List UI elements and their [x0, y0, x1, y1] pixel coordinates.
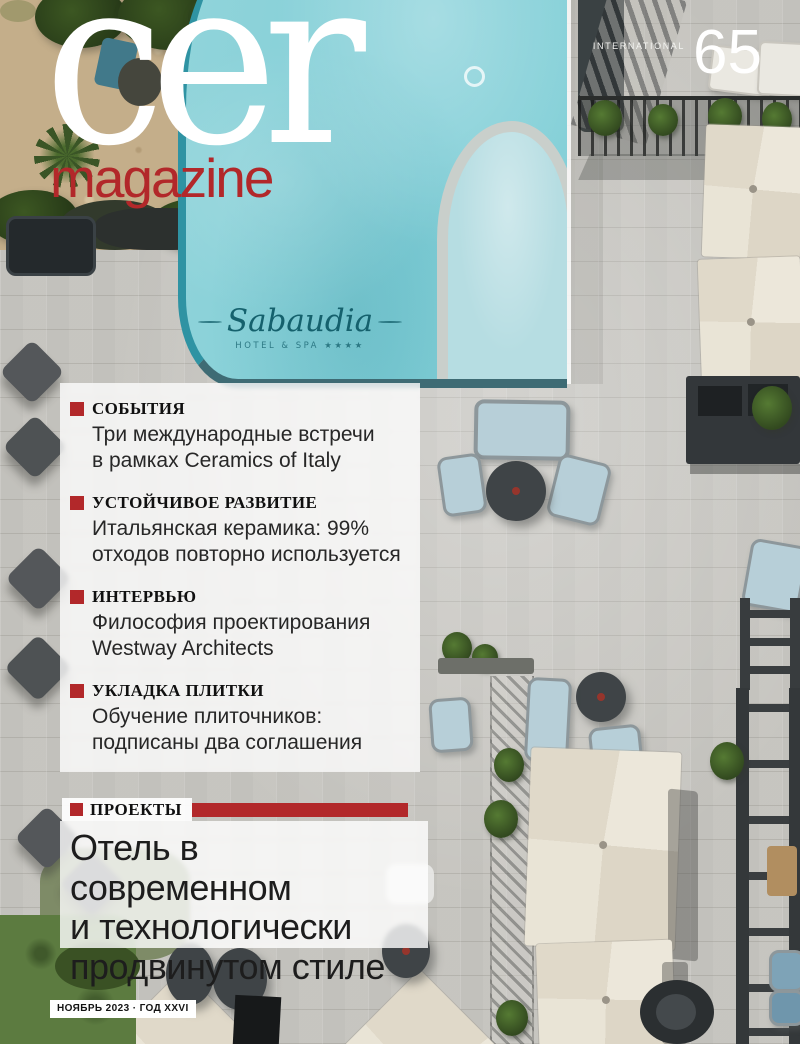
- feature-accent-bar: [192, 803, 408, 817]
- pool-coping-line: [567, 0, 571, 384]
- feature-title-line: Отель в современном: [70, 828, 428, 907]
- pergola-beam: [749, 928, 789, 936]
- feature-title-line: и технологически: [70, 907, 428, 947]
- toc-category: ИНТЕРВЬЮ: [92, 588, 370, 606]
- pergola-shadow: [690, 464, 800, 474]
- pool-logo-tagline: HOTEL & SPA ★★★★: [198, 341, 402, 351]
- planter-box: [438, 658, 534, 674]
- toc-text: УСТОЙЧИВОЕ РАЗВИТИЕ Итальянская керамика…: [92, 494, 401, 568]
- toc-line: Итальянская керамика: 99%: [92, 516, 401, 542]
- pergola-beam: [749, 816, 789, 824]
- round-table: [576, 672, 626, 722]
- round-firepit: [640, 980, 714, 1044]
- umbrella-shadow: [668, 788, 698, 961]
- feature-category: ПРОЕКТЫ: [90, 800, 182, 820]
- chair-blue: [769, 950, 800, 992]
- flourish-line: [198, 321, 222, 323]
- table-centerpiece: [512, 487, 520, 495]
- toc-item-interview: ИНТЕРВЬЮ Философия проектирования Westwa…: [70, 588, 410, 662]
- pergola-structure: [736, 688, 800, 1044]
- toc-line: Обучение плиточников:: [92, 704, 362, 730]
- issue-info: INTERNATIONAL 65: [593, 28, 762, 79]
- toc-category: УКЛАДКА ПЛИТКИ: [92, 682, 362, 700]
- patio-umbrella: [702, 124, 800, 259]
- armchair-blue: [436, 452, 488, 518]
- toc-line: в рамках Ceramics of Italy: [92, 448, 375, 474]
- sun-lounger-white: [757, 41, 800, 97]
- trellis-plant: [484, 800, 518, 838]
- bullet-square-icon: [70, 496, 84, 510]
- patio-umbrella: [698, 256, 800, 393]
- toc-text: ИНТЕРВЬЮ Философия проектирования Westwa…: [92, 588, 370, 662]
- frame-rung: [750, 638, 790, 646]
- issue-number: 65: [693, 28, 762, 79]
- trellis-plant: [496, 1000, 528, 1036]
- feature-label: ПРОЕКТЫ: [62, 798, 192, 821]
- toc-item-tiling: УКЛАДКА ПЛИТКИ Обучение плиточников: под…: [70, 682, 410, 756]
- round-coffee-table: [486, 461, 546, 521]
- chair-blue: [769, 990, 800, 1026]
- pool-logo-name: Sabaudia: [227, 306, 373, 337]
- toc-line: Философия проектирования: [92, 610, 370, 636]
- feature-label-row: ПРОЕКТЫ: [62, 798, 408, 821]
- toc-item-events: СОБЫТИЯ Три международные встречи в рамк…: [70, 400, 410, 474]
- feature-title-line: продвинутом стиле: [70, 947, 428, 987]
- toc-category: СОБЫТИЯ: [92, 400, 375, 418]
- pergola-beam: [749, 704, 789, 712]
- toc-item-sustainability: УСТОЙЧИВОЕ РАЗВИТИЕ Итальянская керамика…: [70, 494, 410, 568]
- magazine-logo-subtitle: magazine: [50, 151, 272, 206]
- bullet-square-icon: [70, 590, 84, 604]
- chair-blue: [428, 697, 474, 754]
- toc-text: УКЛАДКА ПЛИТКИ Обучение плиточников: под…: [92, 682, 362, 756]
- trellis-plant: [494, 748, 524, 782]
- storage-box-dark: [233, 995, 282, 1044]
- bullet-square-icon: [70, 402, 84, 416]
- railing-plant: [648, 104, 678, 136]
- issue-edition-label: INTERNATIONAL: [593, 41, 685, 51]
- pergola-beam: [749, 1028, 789, 1036]
- toc-line: отходов повторно используется: [92, 542, 401, 568]
- toc-line: Три международные встречи: [92, 422, 375, 448]
- frame-rung: [750, 610, 790, 618]
- pergola-beam: [749, 760, 789, 768]
- outdoor-sofa-blue: [473, 399, 570, 461]
- bullet-square-icon: [70, 803, 83, 816]
- pool-ladder-ring: [464, 66, 485, 87]
- railing-plant: [588, 100, 622, 136]
- toc-category: УСТОЙЧИВОЕ РАЗВИТИЕ: [92, 494, 401, 512]
- magazine-cover: Sabaudia HOTEL & SPA ★★★★: [0, 0, 800, 1044]
- contents-panel: СОБЫТИЯ Три международные встречи в рамк…: [60, 383, 420, 772]
- outdoor-sofa-dark: [6, 216, 96, 276]
- feature-title-panel: Отель в современном и технологически про…: [60, 821, 428, 948]
- frame-rung: [750, 666, 790, 674]
- toc-text: СОБЫТИЯ Три международные встречи в рамк…: [92, 400, 375, 474]
- pergola-plant: [710, 742, 744, 780]
- patio-umbrella: [525, 747, 682, 950]
- toc-line: Westway Architects: [92, 636, 370, 662]
- grass-tuft: [0, 0, 36, 22]
- toc-line: подписаны два соглашения: [92, 730, 362, 756]
- pergola-roof: [686, 376, 800, 464]
- issue-date-badge: НОЯБРЬ 2023 · ГОД XXVI: [50, 1000, 196, 1018]
- wooden-table: [767, 846, 797, 896]
- skylight-dark: [698, 386, 742, 416]
- pool-arch-section: [437, 121, 567, 381]
- bullet-square-icon: [70, 684, 84, 698]
- pergola-frame: [740, 598, 800, 690]
- rooftop-plant: [752, 386, 792, 430]
- table-centerpiece: [597, 693, 605, 701]
- flourish-line: [378, 321, 402, 323]
- pool-bottom-logo: Sabaudia HOTEL & SPA ★★★★: [198, 306, 402, 351]
- firepit-center: [656, 994, 696, 1030]
